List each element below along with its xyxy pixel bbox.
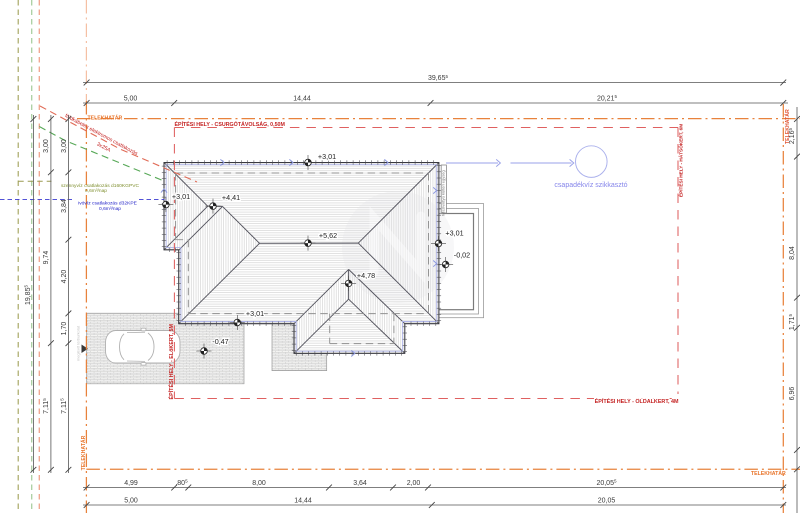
svg-text:+3,01: +3,01	[445, 229, 463, 238]
svg-text:hőszivattyú kültéri egység: hőszivattyú kültéri egység	[440, 170, 445, 216]
svg-text:0,6m³/nap: 0,6m³/nap	[99, 206, 121, 212]
svg-text:2,00: 2,00	[407, 480, 421, 487]
svg-text:3,64: 3,64	[353, 480, 367, 487]
svg-text:14,44: 14,44	[294, 497, 312, 504]
svg-text:-0,47: -0,47	[212, 337, 228, 346]
svg-text:+3,01: +3,01	[318, 152, 336, 161]
svg-text:TELEKHATÁR: TELEKHATÁR	[88, 115, 123, 122]
svg-text:6,96: 6,96	[789, 387, 796, 401]
svg-text:ÉPÍTÉSI HELY - OLDALKERT, 4M: ÉPÍTÉSI HELY - OLDALKERT, 4M	[595, 397, 679, 405]
svg-text:20,05: 20,05	[598, 497, 616, 504]
svg-text:8,00: 8,00	[252, 480, 266, 487]
svg-text:8,04: 8,04	[789, 246, 796, 260]
svg-text:20,215: 20,215	[597, 94, 618, 102]
svg-text:4,99: 4,99	[124, 480, 138, 487]
svg-text:+3,01: +3,01	[172, 192, 190, 201]
svg-text:+5,62: +5,62	[319, 231, 337, 240]
svg-text:ivóvíz csatlakozás d32KPE: ivóvíz csatlakozás d32KPE	[78, 201, 137, 207]
svg-text:szennyvíz csatlakozás d160KGPV: szennyvíz csatlakozás d160KGPVC	[61, 183, 139, 189]
svg-text:-0,02: -0,02	[454, 251, 470, 260]
svg-text:3,00: 3,00	[61, 139, 68, 153]
svg-text:14,44: 14,44	[293, 95, 311, 102]
svg-text:+3,01: +3,01	[246, 309, 264, 318]
svg-text:+4,78: +4,78	[357, 271, 375, 280]
svg-text:TELEKHATÁR: TELEKHATÁR	[751, 470, 786, 477]
svg-text:csapadékvíz szikkasztó: csapadékvíz szikkasztó	[554, 182, 627, 189]
svg-text:0,6m³/nap: 0,6m³/nap	[85, 188, 107, 194]
svg-text:20,055: 20,055	[596, 479, 617, 487]
svg-text:ÉPÍTÉSI HELY - HÁTSÓKERT, 6M: ÉPÍTÉSI HELY - HÁTSÓKERT, 6M	[677, 124, 684, 197]
svg-text:9,74: 9,74	[43, 251, 50, 265]
svg-text:5,00: 5,00	[124, 497, 138, 504]
svg-text:3,00: 3,00	[43, 139, 50, 153]
svg-text:meglévő térburkolat: meglévő térburkolat	[76, 325, 81, 361]
svg-text:19,855: 19,855	[24, 285, 32, 306]
svg-text:4,20: 4,20	[61, 270, 68, 284]
svg-text:+4,41: +4,41	[222, 193, 240, 202]
svg-text:5,00: 5,00	[124, 95, 138, 102]
svg-text:39,655: 39,655	[428, 74, 449, 82]
svg-text:TELEKHATÁR: TELEKHATÁR	[80, 435, 87, 470]
svg-text:1,70: 1,70	[61, 322, 68, 336]
svg-text:ÉPÍTÉSI HELY - CSURGÓTÁVOLSÁG,: ÉPÍTÉSI HELY - CSURGÓTÁVOLSÁG, 0,50M	[175, 120, 286, 128]
svg-text:ÉPÍTÉSI HELY - ELőKERT, 5M: ÉPÍTÉSI HELY - ELőKERT, 5M	[167, 324, 175, 400]
svg-text:3,84: 3,84	[61, 199, 68, 213]
